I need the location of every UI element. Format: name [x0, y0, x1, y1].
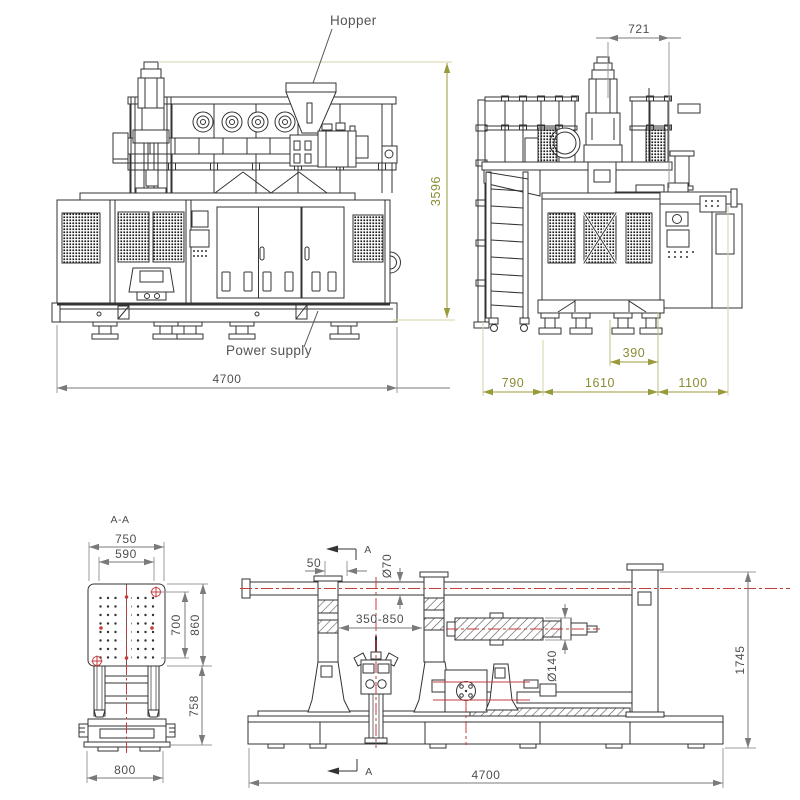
dim-bolt-height: 700: [169, 614, 183, 636]
left-vent-panel: [62, 213, 100, 263]
dim-layout-height: 1745: [733, 645, 747, 674]
dim-stroke-range: 350-850: [356, 612, 404, 626]
power-supply-label: Power supply: [226, 343, 312, 358]
dim-front-height: 3596: [429, 176, 443, 206]
dim-platen-width: 750: [115, 532, 137, 546]
dim-layout-length: 4700: [471, 768, 500, 782]
section-marker-bottom: A: [365, 766, 373, 778]
right-vent-panel: [353, 215, 383, 262]
dim-rod-diameter: Ø70: [380, 554, 394, 578]
blow-molding-machine-drawing: 3596 4700 Hopper Power supply: [0, 0, 800, 800]
dim-offset: 50: [307, 556, 322, 570]
dim-front-width: 4700: [212, 372, 241, 386]
dim-base-width: 800: [114, 763, 136, 777]
dim-side-left: 790: [502, 376, 525, 390]
dim-side-top: 721: [628, 22, 650, 36]
dim-side-mid: 1610: [585, 376, 615, 390]
dim-side-right: 1100: [678, 376, 707, 390]
dim-platen-height: 860: [188, 614, 202, 636]
dim-side-foot: 390: [623, 346, 646, 360]
right-stand: [626, 564, 664, 717]
dim-leg-height: 758: [187, 695, 201, 717]
hopper-label: Hopper: [330, 13, 377, 28]
technical-drawing-canvas: 3596 4700 Hopper Power supply: [0, 0, 800, 800]
cabinet-doors: [217, 207, 344, 298]
dim-shaft-diameter: Ø140: [545, 650, 559, 682]
dim-bolt-width: 590: [115, 547, 137, 561]
section-marker-top: A: [364, 544, 372, 556]
section-title: A-A: [110, 514, 129, 526]
